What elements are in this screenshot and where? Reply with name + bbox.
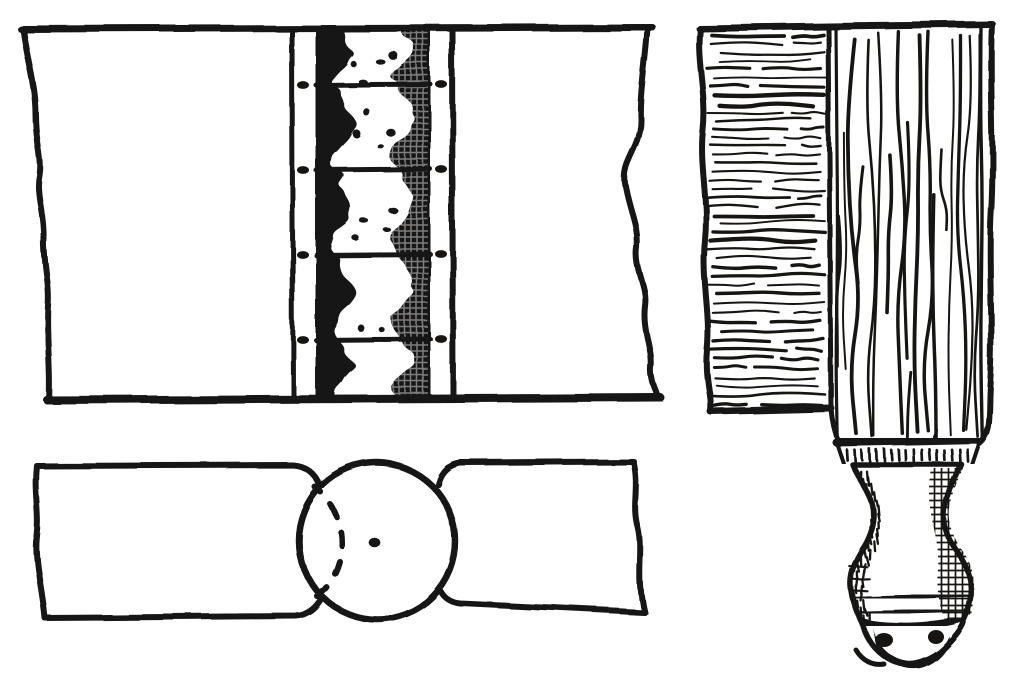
leg-and-rail-elevation [699,24,992,669]
foot-tip-blob-left [875,633,893,647]
left-board-outline [36,465,322,618]
foot-ring-lower [856,610,969,613]
foot-tip-blob-right [928,630,944,644]
collar-tick-carving [846,448,968,461]
right-board-outline [438,462,644,612]
knuckle-joint-plan-view [21,27,660,400]
illustration-page [0,0,1013,679]
knuckle-joint-edge-view [36,462,644,619]
turned-foot [849,464,974,669]
collar-band [836,439,980,463]
foot-ring-upper [854,595,971,598]
leg-grain-texture [836,26,982,440]
pivot-pin-center-dot [369,538,381,548]
rail-grain-texture [707,35,826,405]
line-art-canvas [0,0,1013,679]
